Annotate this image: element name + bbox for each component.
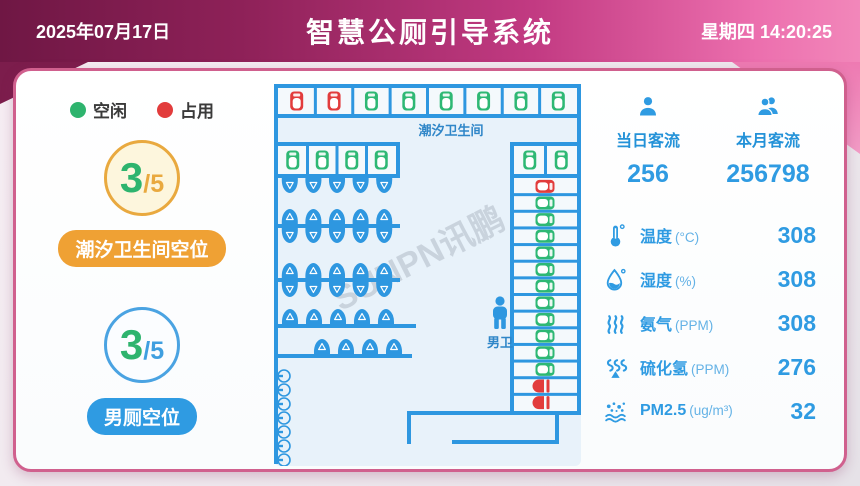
male-availability-circle: 3 /5 bbox=[104, 307, 180, 383]
tidal-free-count: 3 bbox=[120, 157, 143, 199]
male-free-count: 3 bbox=[120, 324, 143, 366]
traffic-today-value: 256 bbox=[588, 160, 708, 189]
stats-column: 当日客流 256 本月客流 256798 bbox=[586, 71, 844, 469]
traffic-month: 本月客流 256798 bbox=[708, 95, 828, 189]
busy-dot-icon bbox=[157, 102, 173, 118]
sensor-row-humidity: 湿度(%) 308 bbox=[602, 265, 828, 293]
toilet-stall-icon bbox=[364, 92, 377, 111]
main-panel: 空闲 占用 3 /5 潮汐卫生间空位 3 /5 男厕空位 SUNPN讯鹏潮汐卫生… bbox=[13, 68, 847, 472]
traffic-month-label: 本月客流 bbox=[708, 127, 828, 151]
droplet-icon bbox=[602, 266, 640, 293]
legend-free-label: 空闲 bbox=[93, 97, 127, 122]
thermometer-icon bbox=[602, 222, 640, 249]
page-title: 智慧公厕引导系统 bbox=[306, 11, 554, 51]
sensor-label: 硫化氢(PPM) bbox=[640, 355, 729, 379]
sensor-value: 276 bbox=[778, 354, 828, 381]
tidal-availability-circle: 3 /5 bbox=[104, 140, 180, 216]
toilet-stall-icon bbox=[535, 313, 554, 326]
free-dot-icon bbox=[70, 102, 86, 118]
toilet-stall-icon bbox=[315, 151, 328, 170]
h2s-icon bbox=[602, 354, 640, 381]
toilet-stall-icon bbox=[327, 92, 340, 111]
toilet-stall-icon bbox=[535, 280, 554, 293]
sensor-label: 湿度(%) bbox=[640, 267, 696, 291]
sensor-value: 308 bbox=[778, 222, 828, 249]
legend-busy: 占用 bbox=[157, 97, 214, 122]
toilet-stall-icon bbox=[535, 263, 554, 276]
toilet-stall-icon bbox=[535, 196, 554, 209]
toilet-stall-icon bbox=[345, 151, 358, 170]
traffic-today-label: 当日客流 bbox=[588, 127, 708, 151]
pm25-icon bbox=[602, 398, 640, 425]
sensor-row-pm25: PM2.5(ug/m³) 32 bbox=[602, 397, 828, 425]
floorplan-map: SUNPN讯鹏潮汐卫生间男卫 bbox=[274, 84, 581, 466]
tidal-total: /5 bbox=[143, 170, 164, 199]
toilet-stall-icon bbox=[535, 363, 554, 376]
tidal-availability-badge: 潮汐卫生间空位 bbox=[58, 230, 225, 267]
ammonia-icon bbox=[602, 310, 640, 337]
sensor-value: 308 bbox=[778, 266, 828, 293]
toilet-stall-icon bbox=[286, 151, 299, 170]
toilet-stall-icon bbox=[290, 92, 303, 111]
toilet-stall-icon bbox=[551, 92, 564, 111]
toilet-stall-icon bbox=[439, 92, 452, 111]
legend-free: 空闲 bbox=[70, 97, 127, 122]
toilet-stall-icon bbox=[477, 92, 490, 111]
toilet-stall-icon bbox=[535, 346, 554, 359]
toilet-stall-icon bbox=[535, 230, 554, 243]
sensor-label: 温度(°C) bbox=[640, 223, 699, 247]
sensor-row-ammonia: 氨气(PPM) 308 bbox=[602, 309, 828, 337]
toilet-stall-icon bbox=[514, 92, 527, 111]
status-legend: 空闲 占用 bbox=[16, 97, 268, 122]
male-availability-badge: 男厕空位 bbox=[87, 398, 197, 435]
toilet-stall-icon bbox=[554, 151, 567, 170]
toilet-stall-icon bbox=[523, 151, 536, 170]
sensor-value: 308 bbox=[778, 310, 828, 337]
toilet-stall-icon bbox=[535, 330, 554, 343]
people-icon bbox=[756, 95, 780, 119]
sensor-value: 32 bbox=[790, 398, 828, 425]
toilet-stall-icon bbox=[535, 246, 554, 259]
header-clock: 星期四 14:20:25 bbox=[701, 18, 832, 44]
map-male-label: 男卫 bbox=[486, 335, 512, 350]
traffic-month-value: 256798 bbox=[708, 160, 828, 189]
toilet-stall-icon bbox=[535, 213, 554, 226]
header-bar: 2025年07月17日 智慧公厕引导系统 星期四 14:20:25 bbox=[0, 0, 860, 62]
availability-column: 空闲 占用 3 /5 潮汐卫生间空位 3 /5 男厕空位 bbox=[16, 71, 268, 469]
floorplan-column: SUNPN讯鹏潮汐卫生间男卫 bbox=[268, 71, 586, 469]
male-total: /5 bbox=[143, 337, 164, 366]
traffic-stats: 当日客流 256 本月客流 256798 bbox=[588, 95, 828, 189]
sensor-list: 温度(°C) 308 湿度(%) 308 bbox=[588, 221, 828, 425]
sensor-label: 氨气(PPM) bbox=[640, 311, 713, 335]
person-icon bbox=[636, 95, 660, 119]
toilet-stall-icon bbox=[374, 151, 387, 170]
traffic-today: 当日客流 256 bbox=[588, 95, 708, 189]
header-date: 2025年07月17日 bbox=[36, 18, 170, 44]
sensor-row-temperature: 温度(°C) 308 bbox=[602, 221, 828, 249]
toilet-stall-icon bbox=[402, 92, 415, 111]
sensor-label: PM2.5(ug/m³) bbox=[640, 402, 733, 420]
toilet-stall-icon bbox=[535, 296, 554, 309]
map-area-label: 潮汐卫生间 bbox=[418, 123, 483, 138]
toilet-stall-icon bbox=[535, 180, 554, 193]
sensor-row-h2s: 硫化氢(PPM) 276 bbox=[602, 353, 828, 381]
legend-busy-label: 占用 bbox=[180, 97, 214, 122]
